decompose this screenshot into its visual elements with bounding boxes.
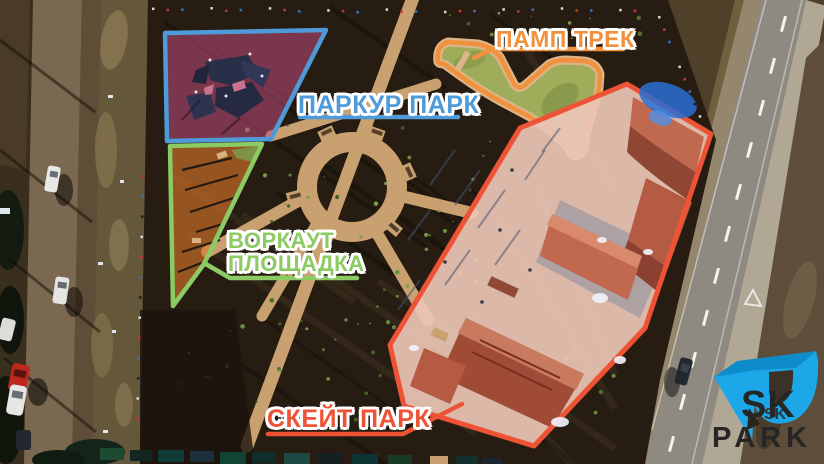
left-roadside [0, 0, 148, 464]
label-pump-track: ПАМП ТРЕК [496, 26, 635, 53]
park-zones-aerial-map: ПАМП ТРЕК ПАРКУР ПАРК ВОРКАУТ ПЛОЩАДКА С… [0, 0, 824, 464]
label-workout-area: ВОРКАУТ ПЛОЩАДКА [228, 229, 364, 275]
label-parkour-park: ПАРКУР ПАРК [298, 91, 479, 120]
label-skate-park: СКЕЙТ ПАРК [267, 405, 430, 434]
logo-text-park: PARK [712, 422, 812, 455]
car-dark-left [16, 430, 31, 450]
label-workout-line1: ВОРКАУТ [228, 229, 364, 252]
aerial-photo [0, 0, 824, 464]
label-workout-line2: ПЛОЩАДКА [228, 252, 364, 275]
